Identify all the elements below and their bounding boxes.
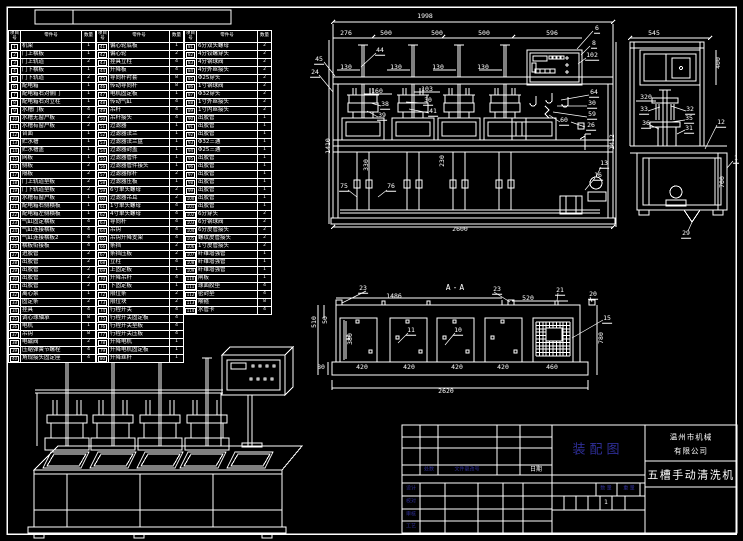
part-name-cell: 配电箱右侧横板 xyxy=(21,203,82,211)
part-item-cell: 48 xyxy=(97,99,109,107)
part-item-cell: 45 xyxy=(97,75,109,83)
part-name-cell: 6分钢球阀 xyxy=(197,219,258,227)
part-item-cell: 107 xyxy=(185,251,197,259)
part-item-no: 113 xyxy=(185,300,196,306)
part-name-cell: 门下横板 xyxy=(21,67,82,75)
part-qty-cell: 1 xyxy=(258,187,272,195)
part-qty-cell: 2 xyxy=(82,339,96,347)
part-item-no: 42 xyxy=(98,52,107,58)
part-qty-cell: 1 xyxy=(170,155,184,163)
part-item-no: 8 xyxy=(11,100,18,106)
part-name-cell: 出胶管 xyxy=(197,115,258,123)
part-qty-cell: 1 xyxy=(258,155,272,163)
part-qty-cell: 1 xyxy=(170,147,184,155)
part-item-no: 111 xyxy=(185,284,196,290)
part-item-no: 54 xyxy=(98,148,107,154)
dimension-label: 596 xyxy=(546,30,558,37)
part-item-cell: 3 xyxy=(9,59,21,67)
part-qty-cell: 2 xyxy=(82,299,96,307)
part-item-cell: 42 xyxy=(97,51,109,59)
part-item-no: 65 xyxy=(98,236,107,242)
part-item-cell: 109 xyxy=(185,267,197,275)
part-qty-cell: 4 xyxy=(170,211,184,219)
part-qty-cell: 2 xyxy=(82,179,96,187)
callout-label: 75 xyxy=(339,183,349,192)
parts-table-group-1: 项目号零件号数量1机架12门上横板13门上轨道24门下横板15门下轨道26配电箱… xyxy=(8,30,96,363)
part-qty-cell: 2 xyxy=(258,219,272,227)
part-name-cell: 水槽门板 xyxy=(21,107,82,115)
part-name-cell: 吊钩 xyxy=(21,331,82,339)
part-qty-cell: 1 xyxy=(258,275,272,283)
part-item-cell: 54 xyxy=(97,147,109,155)
part-item-cell: 56 xyxy=(97,163,109,171)
part-item-no: 74 xyxy=(98,308,107,314)
callout-label: 1 xyxy=(733,155,739,164)
part-qty-cell: 2 xyxy=(170,291,184,299)
part-item-cell: 97 xyxy=(185,171,197,179)
parts-table-header: 数量 xyxy=(170,31,184,43)
part-item-no: 88 xyxy=(186,100,195,106)
part-name-cell: 过滤器 xyxy=(109,123,170,131)
part-item-cell: 80 xyxy=(97,355,109,363)
part-item-cell: 102 xyxy=(185,211,197,219)
part-item-no: 49 xyxy=(98,108,107,114)
part-item-cell: 49 xyxy=(97,107,109,115)
part-name-cell: 吊杆接头 xyxy=(109,115,170,123)
part-item-cell: 39 xyxy=(9,347,21,355)
part-item-no: 102 xyxy=(185,212,196,218)
part-item-cell: 112 xyxy=(185,291,197,299)
parts-table-group-2: 项目号零件号数量41偏心轮底板142偏心轮243挂具立柱444升降板445导向杆… xyxy=(96,30,184,363)
company-name-line2: 有限公司 xyxy=(674,447,708,455)
part-item-cell: 41 xyxy=(97,43,109,51)
part-name-cell: 密封垫 xyxy=(197,291,258,299)
part-item-cell: 9 xyxy=(9,107,21,115)
part-name-cell: 下固定板 xyxy=(109,283,170,291)
part-item-cell: 76 xyxy=(97,323,109,331)
part-item-cell: 108 xyxy=(185,259,197,267)
part-qty-cell: 4 xyxy=(170,219,184,227)
part-item-cell: 103 xyxy=(185,219,197,227)
part-item-no: 47 xyxy=(98,92,107,98)
part-item-cell: 8 xyxy=(9,99,21,107)
part-name-cell: 升降丝杆 xyxy=(109,355,170,363)
part-item-no: 28 xyxy=(10,260,19,266)
part-qty-cell: 1 xyxy=(258,123,272,131)
callout-label: 24 xyxy=(310,69,320,78)
part-qty-cell: 1 xyxy=(258,115,272,123)
part-item-no: 78 xyxy=(98,340,107,346)
part-item-cell: 74 xyxy=(97,307,109,315)
callout-label: 35 xyxy=(684,115,694,124)
part-name-cell: 纤维增强管 xyxy=(197,251,258,259)
part-name-cell: 配电箱右对立柱 xyxy=(21,99,82,107)
part-item-cell: 14 xyxy=(9,147,21,155)
part-item-cell: 52 xyxy=(97,131,109,139)
part-item-cell: 2 xyxy=(9,51,21,59)
part-qty-cell: 4 xyxy=(82,107,96,115)
part-item-no: 18 xyxy=(10,180,19,186)
parts-table-header: 零件号 xyxy=(21,31,82,43)
part-qty-cell: 1 xyxy=(170,339,184,347)
part-item-no: 37 xyxy=(10,332,19,338)
part-qty-cell: 8 xyxy=(258,299,272,307)
part-item-no: 7 xyxy=(11,92,18,98)
part-item-no: 57 xyxy=(98,172,107,178)
part-item-cell: 79 xyxy=(97,347,109,355)
part-item-no: 9 xyxy=(11,108,18,114)
qty-label: 数 量 xyxy=(600,487,612,492)
part-item-cell: 34 xyxy=(9,307,21,315)
callout-label: 60 xyxy=(559,117,569,126)
part-qty-cell: 2 xyxy=(258,59,272,67)
part-item-cell: 20 xyxy=(9,195,21,203)
part-item-no: 19 xyxy=(10,188,19,194)
part-name-cell: 水管卡 xyxy=(197,307,258,315)
part-item-cell: 4 xyxy=(9,67,21,75)
part-item-no: 36 xyxy=(10,324,19,330)
part-item-no: 108 xyxy=(185,260,196,266)
part-qty-cell: 2 xyxy=(170,171,184,179)
part-item-no: 41 xyxy=(98,44,107,50)
part-item-no: 80 xyxy=(98,356,107,362)
part-qty-cell: 2 xyxy=(82,187,96,195)
callout-label: 33 xyxy=(639,106,649,115)
part-item-cell: 30 xyxy=(9,275,21,283)
part-item-no: 67 xyxy=(98,252,107,258)
callout-label: 39 xyxy=(377,112,387,121)
section-title: A-A xyxy=(446,284,466,292)
isometric-view xyxy=(28,347,302,538)
part-item-no: 46 xyxy=(98,84,107,90)
part-item-no: 12 xyxy=(10,132,19,138)
part-item-no: 56 xyxy=(98,164,107,170)
part-qty-cell: 8 xyxy=(82,315,96,323)
dimension-label: 420 xyxy=(497,364,509,371)
part-item-cell: 61 xyxy=(97,203,109,211)
part-name-cell: 4分钢球阀 xyxy=(197,59,258,67)
part-name-cell: 导向杆衬套 xyxy=(109,75,170,83)
part-name-cell: 门上轨道 xyxy=(21,59,82,67)
dimension-label: 130 xyxy=(390,64,402,71)
callout-label: 23 xyxy=(492,286,502,295)
part-name-cell: 挂具 xyxy=(21,307,82,315)
part-name-cell: Φ32穿头 xyxy=(197,91,258,99)
drawing-sheet: 1998276500500500452444130130130130160103… xyxy=(0,0,743,541)
part-qty-cell: 4 xyxy=(82,355,96,363)
part-item-no: 83 xyxy=(186,60,195,66)
part-name-cell: 6分双头螺母 xyxy=(197,43,258,51)
part-item-no: 59 xyxy=(98,188,107,194)
part-item-cell: 68 xyxy=(97,259,109,267)
part-name-cell: 升降电机 xyxy=(109,339,170,347)
part-item-no: 77 xyxy=(98,332,107,338)
part-item-no: 6 xyxy=(11,84,18,90)
callout-label: 30 xyxy=(587,100,597,109)
part-item-no: 76 xyxy=(98,324,107,330)
part-qty-cell: 1 xyxy=(258,267,272,275)
part-item-cell: 64 xyxy=(97,227,109,235)
part-qty-cell: 8 xyxy=(170,75,184,83)
part-item-no: 62 xyxy=(98,212,107,218)
part-item-no: 70 xyxy=(98,276,107,282)
part-item-cell: 89 xyxy=(185,107,197,115)
part-name-cell: 出胶管 xyxy=(197,171,258,179)
part-item-cell: 43 xyxy=(97,59,109,67)
part-item-cell: 100 xyxy=(185,195,197,203)
part-item-cell: 18 xyxy=(9,179,21,187)
part-qty-cell: 4 xyxy=(170,331,184,339)
part-name-cell: 过滤器撑杆 xyxy=(109,171,170,179)
callout-label: 76 xyxy=(386,183,396,192)
part-item-cell: 7 xyxy=(9,91,21,99)
part-item-cell: 55 xyxy=(97,155,109,163)
part-item-cell: 57 xyxy=(97,171,109,179)
part-item-cell: 17 xyxy=(9,171,21,179)
part-name-cell: 偏心轮底板 xyxy=(109,43,170,51)
part-qty-cell: 2 xyxy=(170,251,184,259)
callout-label: 15 xyxy=(602,315,612,324)
part-item-no: 16 xyxy=(10,164,19,170)
part-item-no: 93 xyxy=(186,140,195,146)
part-item-cell: 51 xyxy=(97,123,109,131)
part-name-cell: 6分皮管接头 xyxy=(197,227,258,235)
part-name-cell: 出胶管 xyxy=(197,163,258,171)
part-item-no: 53 xyxy=(98,140,107,146)
part-item-no: 68 xyxy=(98,260,107,266)
dimension-label: 420 xyxy=(451,364,463,371)
part-qty-cell: 1 xyxy=(82,91,96,99)
part-qty-cell: 1 xyxy=(82,43,96,51)
part-name-cell: 4分铰螺穿头 xyxy=(197,51,258,59)
part-item-cell: 83 xyxy=(185,59,197,67)
part-item-cell: 71 xyxy=(97,283,109,291)
part-qty-cell: 1 xyxy=(258,251,272,259)
part-qty-cell: 2 xyxy=(258,107,272,115)
part-name-cell: 过滤器管件接头 xyxy=(109,163,170,171)
part-item-cell: 59 xyxy=(97,187,109,195)
part-name-cell: 水槽有窗户板 xyxy=(21,195,82,203)
mesh-opening xyxy=(546,328,562,341)
part-qty-cell: 4 xyxy=(170,315,184,323)
dimension-label: 500 xyxy=(380,30,392,37)
callout-label: 45 xyxy=(314,56,324,65)
part-qty-cell: 2 xyxy=(170,51,184,59)
part-name-cell: 挂具立柱 xyxy=(109,59,170,67)
callout-label: 29 xyxy=(681,230,691,239)
date-label: 日期 xyxy=(530,467,542,473)
part-name-cell: 电磁阀 xyxy=(21,339,82,347)
part-name-cell: 吊钩升降支架 xyxy=(109,235,170,243)
part-item-no: 45 xyxy=(98,76,107,82)
part-name-cell: 网板 xyxy=(21,155,82,163)
part-qty-cell: 4 xyxy=(170,259,184,267)
part-item-no: 86 xyxy=(186,84,195,90)
part-item-no: 43 xyxy=(98,60,107,66)
part-item-no: 26 xyxy=(10,244,19,250)
part-item-no: 34 xyxy=(10,308,19,314)
part-item-cell: 105 xyxy=(185,235,197,243)
part-item-cell: 70 xyxy=(97,275,109,283)
dimension-label: 500 xyxy=(431,30,443,37)
part-item-cell: 50 xyxy=(97,115,109,123)
dimension-label: 160 xyxy=(371,88,383,95)
part-qty-cell: 1 xyxy=(170,267,184,275)
part-item-cell: 98 xyxy=(185,179,197,187)
control-panel-detail xyxy=(527,50,584,129)
dimension-label: 400 xyxy=(715,57,722,69)
part-item-no: 94 xyxy=(186,148,195,154)
part-qty-cell: 4 xyxy=(170,307,184,315)
parts-table-header: 项目号 xyxy=(185,31,197,43)
part-item-cell: 27 xyxy=(9,251,21,259)
part-qty-cell: 1 xyxy=(258,195,272,203)
part-item-no: 95 xyxy=(186,156,195,162)
part-name-cell: 纤维增强管 xyxy=(197,259,258,267)
part-item-no: 35 xyxy=(10,316,19,322)
part-qty-cell: 1 xyxy=(170,139,184,147)
part-name-cell: 气缸连接横板 xyxy=(21,227,82,235)
mesh-grid xyxy=(536,322,570,356)
part-qty-cell: 1 xyxy=(82,155,96,163)
part-qty-cell: 2 xyxy=(82,163,96,171)
part-qty-cell: 1 xyxy=(170,123,184,131)
dimension-label: 330 xyxy=(363,159,370,171)
part-item-no: 24 xyxy=(10,228,19,234)
part-name-cell: 电机 xyxy=(21,323,82,331)
part-qty-cell: 2 xyxy=(258,235,272,243)
part-item-no: 25 xyxy=(10,236,19,242)
part-name-cell: Φ25穿头 xyxy=(197,75,258,83)
part-item-cell: 87 xyxy=(185,91,197,99)
part-item-no: 1 xyxy=(11,44,18,50)
part-name-cell: 出胶管 xyxy=(21,259,82,267)
callout-label: 12 xyxy=(716,119,726,128)
dimension-label: 700 xyxy=(719,176,726,188)
part-item-no: 10 xyxy=(10,116,19,122)
part-name-cell: 限位块 xyxy=(109,299,170,307)
part-item-no: 81 xyxy=(186,44,195,50)
part-item-cell: 113 xyxy=(185,299,197,307)
part-name-cell: 1寸皮管接头 xyxy=(197,243,258,251)
callout-label: 44 xyxy=(375,47,385,56)
part-item-no: 51 xyxy=(98,124,107,130)
part-qty-cell: 2 xyxy=(258,67,272,75)
part-item-no: 22 xyxy=(10,212,19,218)
part-name-cell: 角规接头固定座 xyxy=(21,355,82,363)
part-name-cell: 出胶管 xyxy=(21,283,82,291)
dimension-label: 510 xyxy=(311,316,318,328)
part-qty-cell: 1 xyxy=(82,195,96,203)
part-item-cell: 5 xyxy=(9,75,21,83)
parts-table-header: 数量 xyxy=(82,31,96,43)
part-item-no: 5 xyxy=(11,76,18,82)
part-name-cell: 调心球轴承 xyxy=(21,315,82,323)
part-qty-cell: 1 xyxy=(170,163,184,171)
part-item-cell: 93 xyxy=(185,139,197,147)
part-name-cell: 机架 xyxy=(21,43,82,51)
part-qty-cell: 4 xyxy=(170,115,184,123)
part-item-cell: 37 xyxy=(9,331,21,339)
part-item-cell: 66 xyxy=(97,243,109,251)
change-doc-label: 文件更改号 xyxy=(454,468,479,473)
part-qty-cell: 1 xyxy=(170,347,184,355)
parts-table-header: 数量 xyxy=(258,31,272,43)
part-item-no: 2 xyxy=(11,52,18,58)
part-qty-cell: 4 xyxy=(82,307,96,315)
part-name-cell: 偏心轮 xyxy=(109,51,170,59)
part-item-no: 106 xyxy=(185,244,196,250)
part-item-cell: 47 xyxy=(97,91,109,99)
product-name: 五槽手动清洗机 xyxy=(647,470,735,481)
part-name-cell: 吊杆 xyxy=(109,107,170,115)
part-name-cell: 台面 xyxy=(21,131,82,139)
part-qty-cell: 2 xyxy=(170,195,184,203)
callout-label: 36 xyxy=(641,120,651,129)
part-name-cell: 电机固定板 xyxy=(109,91,170,99)
part-name-cell: 行程开关固定板 xyxy=(109,315,170,323)
part-item-cell: 94 xyxy=(185,147,197,155)
part-item-no: 38 xyxy=(10,340,19,346)
part-item-no: 105 xyxy=(185,236,196,242)
part-name-cell: 1寸单头螺母 xyxy=(109,203,170,211)
callout-label: 23 xyxy=(358,285,368,294)
part-qty-cell: 4 xyxy=(170,323,184,331)
part-item-cell: 65 xyxy=(97,235,109,243)
part-qty-cell: 4 xyxy=(170,235,184,243)
part-item-no: 85 xyxy=(186,76,195,82)
part-item-no: 103 xyxy=(185,220,196,226)
company-name-line1: 温州市机械 xyxy=(670,433,713,441)
part-item-no: 50 xyxy=(98,116,107,122)
part-name-cell: 隔板 xyxy=(21,171,82,179)
dimension-label: 1998 xyxy=(417,13,433,20)
part-item-no: 52 xyxy=(98,132,107,138)
dimension-label: 276 xyxy=(340,30,352,37)
part-item-no: 112 xyxy=(185,292,196,298)
part-name-cell: Φ25三通 xyxy=(197,147,258,155)
part-name-cell: 过滤器封盖 xyxy=(109,147,170,155)
part-item-cell: 32 xyxy=(9,291,21,299)
part-item-no: 48 xyxy=(98,100,107,106)
part-name-cell: 侧板 xyxy=(21,163,82,171)
part-item-no: 17 xyxy=(10,172,19,178)
dimension-label: 420 xyxy=(403,364,415,371)
part-item-no: 98 xyxy=(186,180,195,186)
part-item-cell: 26 xyxy=(9,243,21,251)
part-qty-cell: 1 xyxy=(82,147,96,155)
callout-label: 10 xyxy=(453,327,463,336)
part-name-cell: 水槽无窗户板 xyxy=(21,115,82,123)
part-item-cell: 101 xyxy=(185,203,197,211)
part-item-cell: 29 xyxy=(9,267,21,275)
part-item-cell: 90 xyxy=(185,115,197,123)
part-item-cell: 33 xyxy=(9,299,21,307)
part-item-no: 60 xyxy=(98,196,107,202)
part-name-cell: 门上轨道垫板 xyxy=(21,179,82,187)
part-qty-cell: 1 xyxy=(170,91,184,99)
part-qty-cell: 1 xyxy=(258,171,272,179)
part-name-cell: 过滤器压板 xyxy=(109,179,170,187)
part-name-cell: 4寸单头螺母 xyxy=(109,211,170,219)
part-item-cell: 1 xyxy=(9,43,21,51)
part-item-no: 90 xyxy=(186,116,195,122)
part-item-cell: 15 xyxy=(9,155,21,163)
part-item-cell: 111 xyxy=(185,283,197,291)
callout-label: 41 xyxy=(428,108,438,117)
part-qty-cell: 2 xyxy=(258,99,272,107)
part-qty-cell: 2 xyxy=(170,243,184,251)
